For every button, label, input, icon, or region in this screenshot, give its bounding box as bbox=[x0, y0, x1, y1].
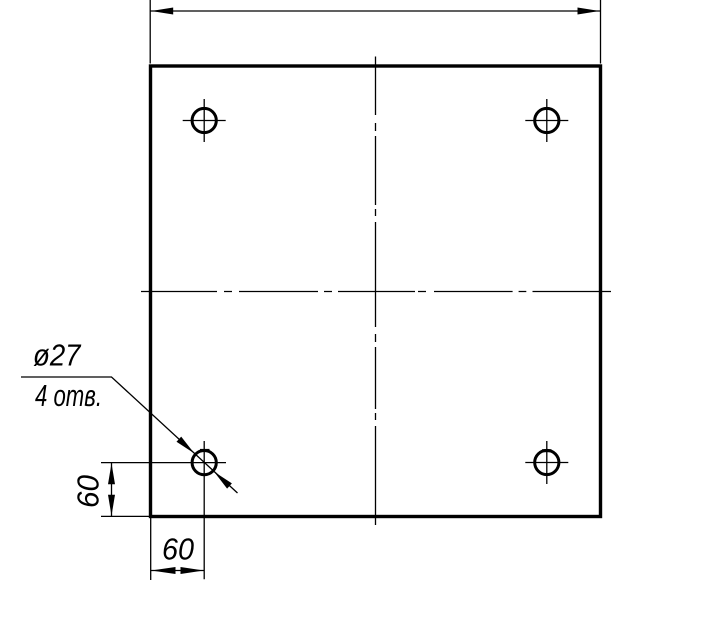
svg-text:4 omв.: 4 omв. bbox=[35, 378, 102, 413]
svg-text:60: 60 bbox=[71, 475, 106, 508]
svg-text:60: 60 bbox=[162, 532, 194, 567]
svg-text:ø27: ø27 bbox=[33, 338, 82, 373]
